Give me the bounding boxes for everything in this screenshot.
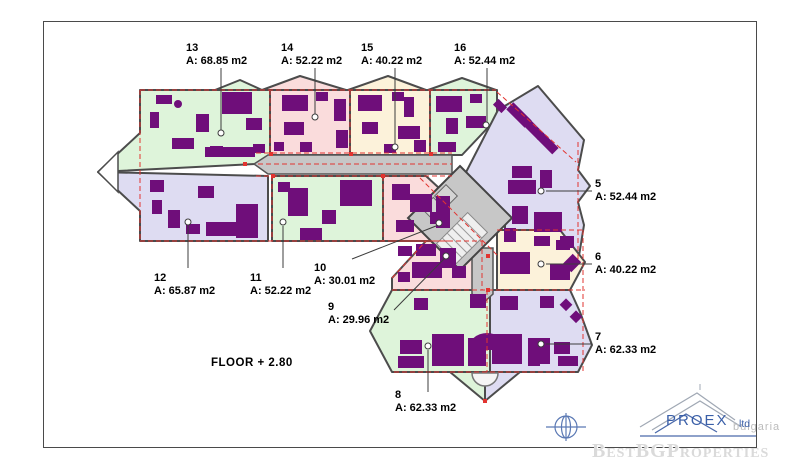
apartment-number: 7	[595, 331, 656, 344]
apartment-label-11: 11 A: 52.22 m2	[250, 272, 311, 297]
apartment-label-12: 12 A: 65.87 m2	[154, 272, 215, 297]
proex-ltd-suffix: ltd	[739, 418, 750, 430]
apartment-number: 13	[186, 42, 247, 55]
apartment-area: A: 52.22 m2	[250, 285, 311, 298]
apartment-number: 8	[395, 389, 456, 402]
apartment-area: A: 30.01 m2	[314, 275, 375, 288]
apartment-number: 16	[454, 42, 515, 55]
apartment-label-8: 8 A: 62.33 m2	[395, 389, 456, 414]
apartment-area: A: 68.85 m2	[186, 55, 247, 68]
apartment-label-13: 13 A: 68.85 m2	[186, 42, 247, 67]
apartment-number: 14	[281, 42, 342, 55]
apartment-label-7: 7 A: 62.33 m2	[595, 331, 656, 356]
apartment-area: A: 40.22 m2	[361, 55, 422, 68]
apartment-number: 15	[361, 42, 422, 55]
apartment-area: A: 52.22 m2	[281, 55, 342, 68]
apartment-number: 12	[154, 272, 215, 285]
apartment-area: A: 52.44 m2	[454, 55, 515, 68]
apartment-label-9: 9 A: 29.96 m2	[328, 301, 389, 326]
proex-company-name: PROEX	[666, 412, 729, 429]
bestbgproperties-watermark: BestBGProperties	[592, 440, 769, 463]
apartment-area: A: 62.33 m2	[395, 402, 456, 415]
apartment-label-15: 15 A: 40.22 m2	[361, 42, 422, 67]
floor-elevation-label: FLOOR + 2.80	[211, 357, 293, 369]
floor-plan-sheet: 13 A: 68.85 m2 14 A: 52.22 m2 15 A: 40.2…	[0, 0, 800, 472]
apartment-area: A: 62.33 m2	[595, 344, 656, 357]
apartment-area: A: 40.22 m2	[595, 264, 656, 277]
apartment-number: 6	[595, 251, 656, 264]
apartment-number: 9	[328, 301, 389, 314]
apartment-area: A: 52.44 m2	[595, 191, 656, 204]
apartment-label-6: 6 A: 40.22 m2	[595, 251, 656, 276]
apartment-number: 10	[314, 262, 375, 275]
apartment-number: 5	[595, 178, 656, 191]
apartment-area: A: 29.96 m2	[328, 314, 389, 327]
apartment-label-16: 16 A: 52.44 m2	[454, 42, 515, 67]
apartment-label-10: 10 A: 30.01 m2	[314, 262, 375, 287]
compass-icon	[546, 413, 586, 441]
apartment-number: 11	[250, 272, 311, 285]
apartment-area: A: 65.87 m2	[154, 285, 215, 298]
apartment-label-5: 5 A: 52.44 m2	[595, 178, 656, 203]
apartment-label-14: 14 A: 52.22 m2	[281, 42, 342, 67]
